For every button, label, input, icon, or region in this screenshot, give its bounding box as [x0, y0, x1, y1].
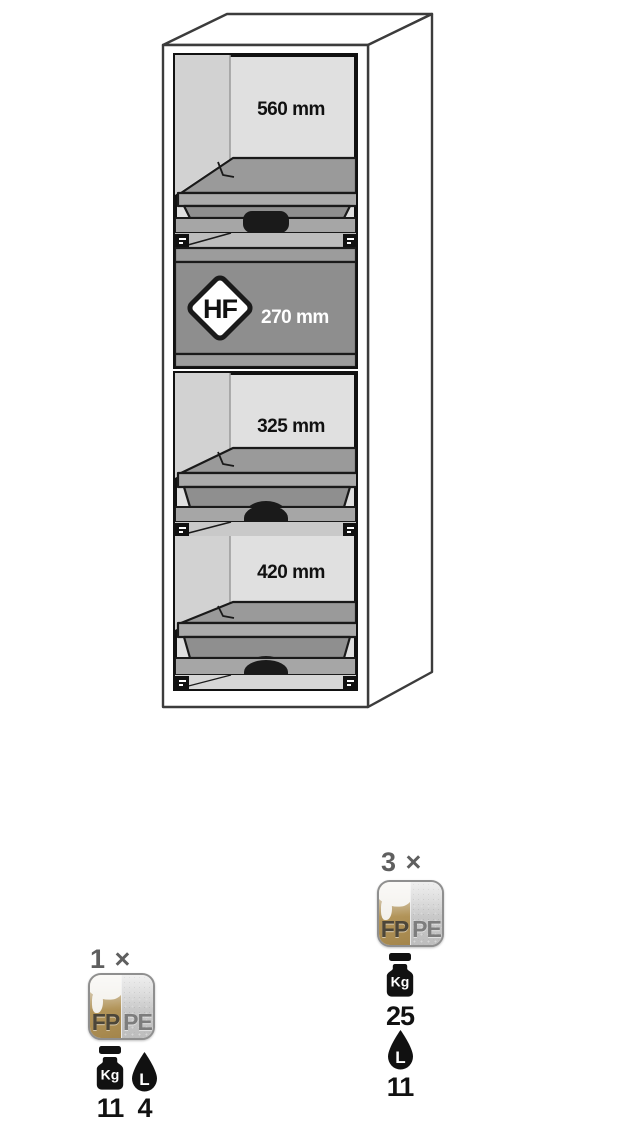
right-count-label: 3 × — [381, 847, 422, 878]
liquid-drop-icon: L — [130, 1051, 159, 1099]
cabinet-side-face — [368, 14, 432, 707]
lower-opening: 325 mm 420 mm — [175, 373, 358, 689]
l-unit-label: L — [139, 1070, 149, 1089]
dimension-560: 560 mm — [257, 99, 325, 120]
cabinet-drawing: 560 mm HF 270 mm — [0, 0, 629, 718]
fp-pe-material-icon: FP PE — [88, 973, 155, 1040]
weight-icon: Kg — [383, 953, 417, 1005]
dimension-325: 325 mm — [257, 416, 325, 437]
liquid-drop-icon: L — [386, 1029, 415, 1077]
fp-label: FP — [92, 1011, 119, 1038]
left-weight-value: 11 — [93, 1093, 127, 1124]
left-volume-value: 4 — [130, 1093, 159, 1124]
pe-label: PE — [123, 1011, 152, 1038]
fp-label: FP — [381, 918, 408, 945]
kg-unit-label: Kg — [101, 1067, 120, 1083]
right-weight-value: 25 — [383, 1001, 417, 1032]
pe-half: PE — [121, 975, 153, 1038]
right-volume-value: 11 — [383, 1072, 417, 1103]
kg-unit-label: Kg — [391, 974, 410, 990]
fp-half: FP — [90, 975, 121, 1038]
cabinet-diagram: 560 mm HF 270 mm — [0, 0, 629, 718]
dimension-420: 420 mm — [257, 562, 325, 583]
pe-label: PE — [412, 918, 441, 945]
pe-half: PE — [410, 882, 442, 945]
hf-code: HF — [203, 294, 237, 324]
weight-icon: Kg — [93, 1046, 127, 1098]
upper-opening: 560 mm HF 270 mm — [175, 55, 358, 367]
fp-half: FP — [379, 882, 410, 945]
l-unit-label: L — [395, 1048, 405, 1067]
dimension-270: 270 mm — [261, 307, 329, 328]
handle — [243, 211, 289, 233]
fp-pe-material-icon: FP PE — [377, 880, 444, 947]
left-count-label: 1 × — [90, 944, 131, 975]
